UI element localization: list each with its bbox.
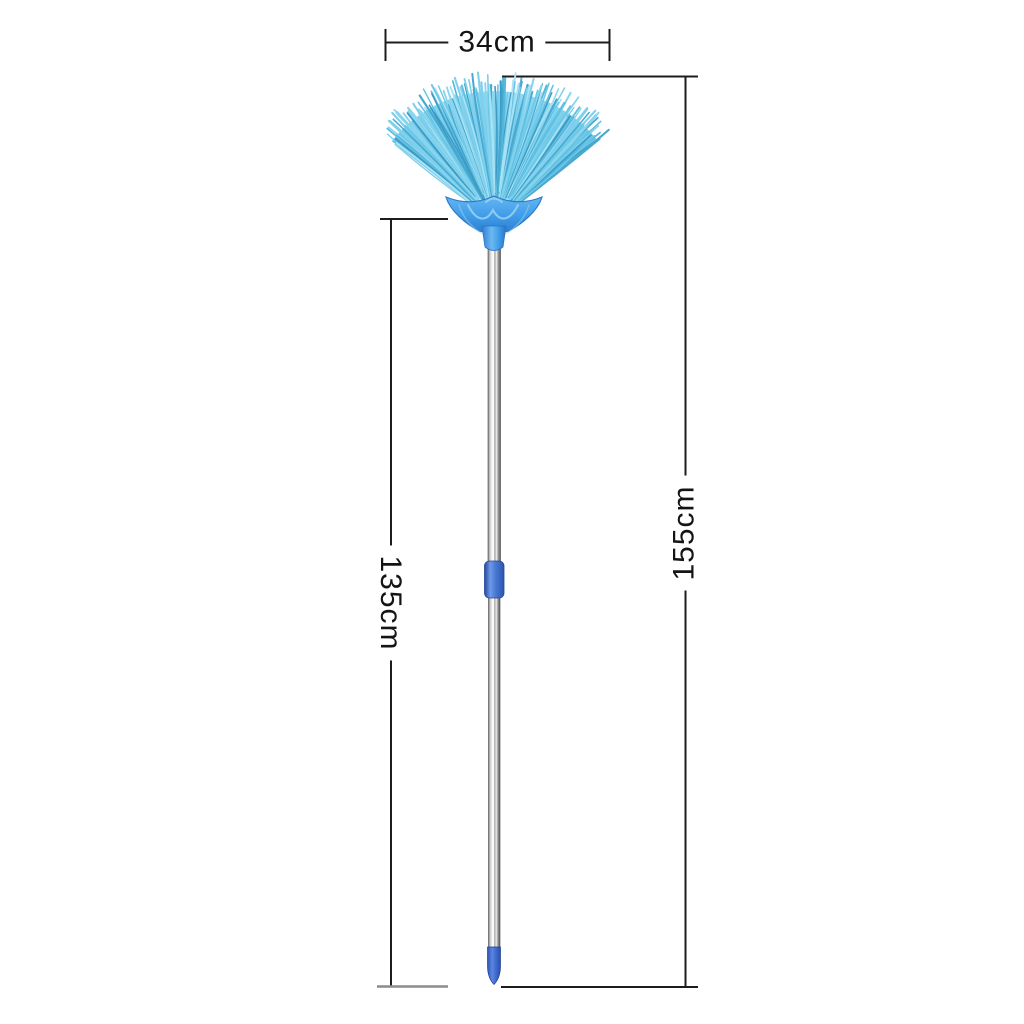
pole-end-cap xyxy=(488,947,501,985)
broom xyxy=(387,73,609,985)
handle-height-dimension-label: 135cm xyxy=(372,545,408,660)
total-height-dimension-label: 155cm xyxy=(666,475,702,590)
pole-collar xyxy=(485,561,505,598)
width-dimension-label: 34cm xyxy=(448,24,545,60)
pole-lower-segment xyxy=(489,597,501,948)
broom-head-socket xyxy=(482,226,506,251)
pole-upper-segment xyxy=(488,249,501,562)
product-image: 34cm 155cm 135cm xyxy=(0,0,1024,1024)
broom-illustration xyxy=(0,0,1024,1024)
